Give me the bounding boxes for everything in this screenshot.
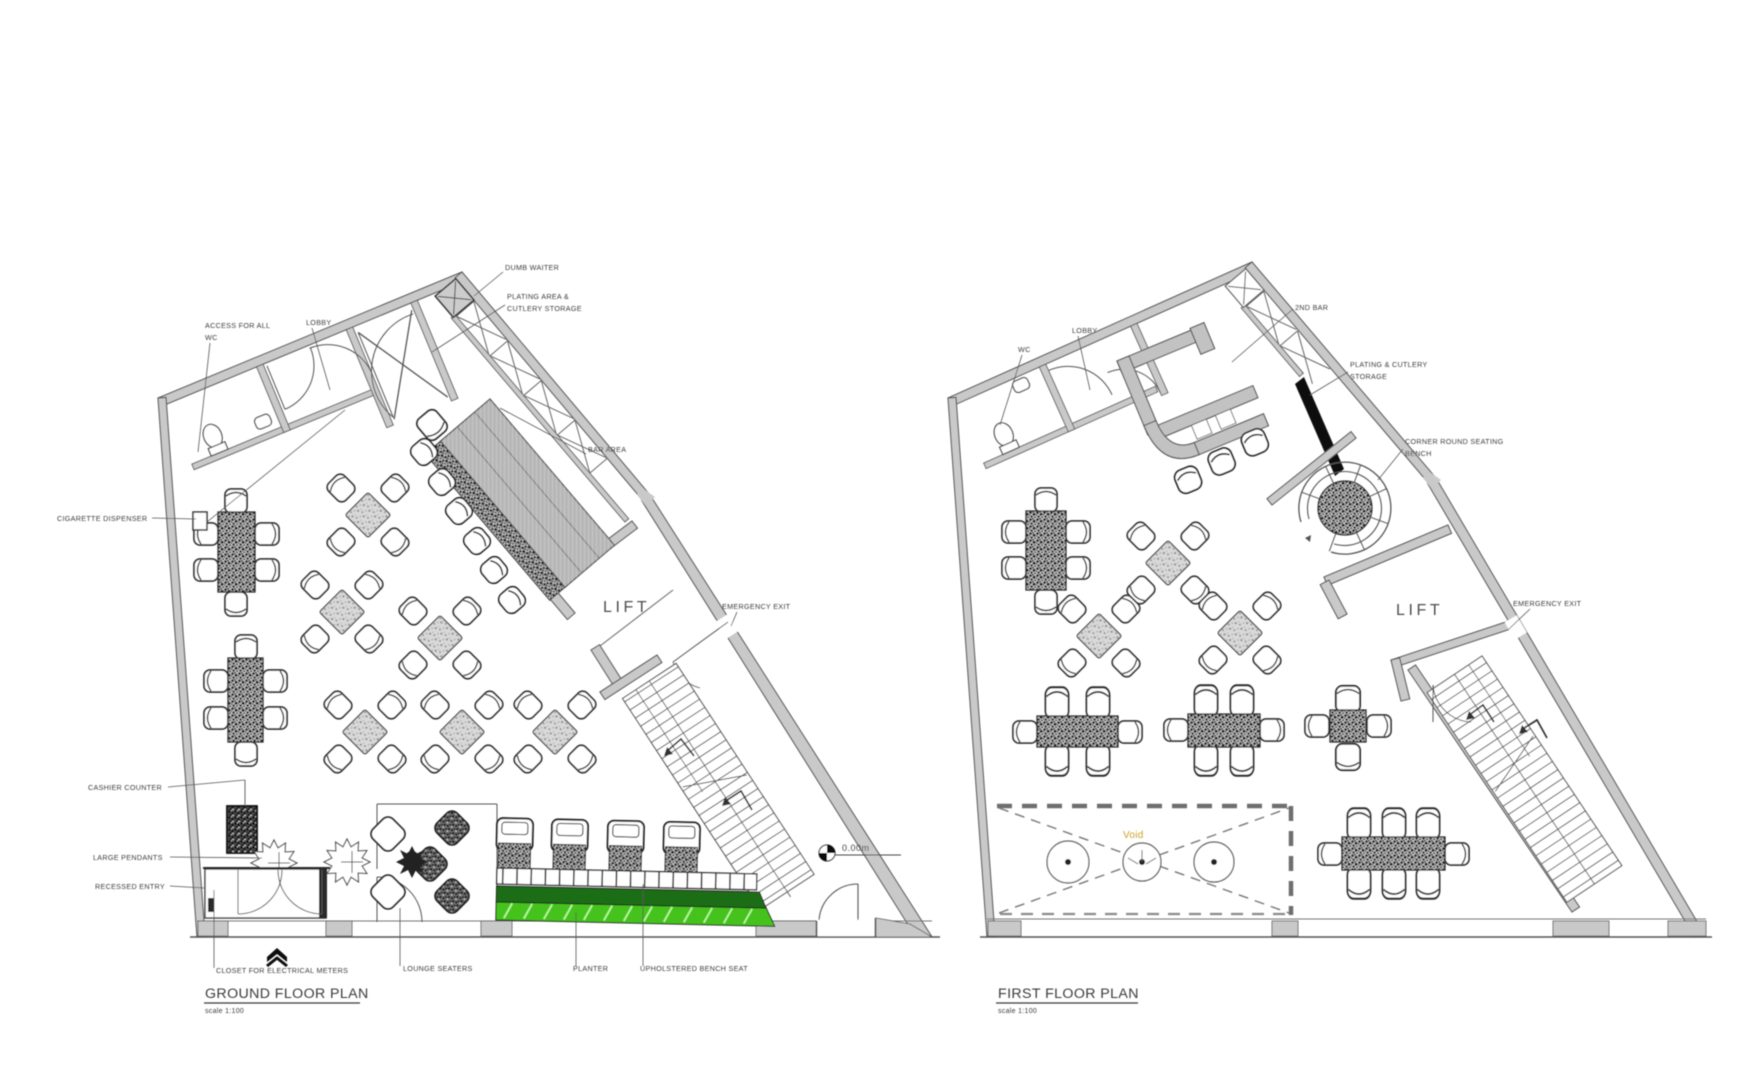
svg-text:PLATING & CUTLERY: PLATING & CUTLERY	[1350, 360, 1428, 369]
svg-text:PLANTER: PLANTER	[573, 964, 608, 973]
svg-text:scale 1:100: scale 1:100	[998, 1008, 1037, 1015]
svg-text:ACCESS FOR ALL: ACCESS FOR ALL	[205, 321, 270, 330]
svg-text:BAR AREA: BAR AREA	[588, 445, 626, 454]
svg-text:LOBBY: LOBBY	[306, 318, 331, 327]
svg-text:Void: Void	[1123, 830, 1144, 841]
svg-text:CIGARETTE DISPENSER: CIGARETTE DISPENSER	[57, 514, 147, 523]
svg-text:CLOSET FOR ELECTRICAL METERS: CLOSET FOR ELECTRICAL METERS	[216, 966, 348, 975]
svg-text:BENCH: BENCH	[1405, 449, 1432, 458]
svg-text:CASHIER COUNTER: CASHIER COUNTER	[88, 783, 162, 792]
svg-text:0.00m: 0.00m	[842, 843, 870, 853]
svg-text:PLATING AREA &: PLATING AREA &	[507, 292, 569, 301]
svg-text:UPHOLSTERED BENCH SEAT: UPHOLSTERED BENCH SEAT	[640, 964, 748, 973]
svg-text:RECESSED ENTRY: RECESSED ENTRY	[95, 882, 165, 891]
svg-text:CUTLERY STORAGE: CUTLERY STORAGE	[507, 304, 582, 313]
svg-text:DUMB WAITER: DUMB WAITER	[505, 263, 559, 272]
svg-text:LIFT: LIFT	[1396, 602, 1443, 619]
svg-text:STORAGE: STORAGE	[1350, 372, 1387, 381]
svg-text:LARGE PENDANTS: LARGE PENDANTS	[93, 853, 163, 862]
svg-text:WC: WC	[1018, 345, 1031, 354]
svg-text:LOBBY: LOBBY	[1072, 326, 1097, 335]
svg-text:CORNER ROUND SEATING: CORNER ROUND SEATING	[1405, 437, 1504, 446]
svg-text:GROUND FLOOR PLAN: GROUND FLOOR PLAN	[205, 986, 369, 1002]
svg-text:2ND BAR: 2ND BAR	[1295, 303, 1328, 312]
svg-text:LOUNGE SEATERS: LOUNGE SEATERS	[403, 964, 473, 973]
svg-text:EMERGENCY EXIT: EMERGENCY EXIT	[1513, 599, 1582, 608]
svg-text:scale 1:100: scale 1:100	[205, 1008, 244, 1015]
svg-text:EMERGENCY EXIT: EMERGENCY EXIT	[722, 602, 791, 611]
svg-text:FIRST FLOOR PLAN: FIRST FLOOR PLAN	[998, 986, 1139, 1002]
svg-text:WC: WC	[205, 333, 218, 342]
